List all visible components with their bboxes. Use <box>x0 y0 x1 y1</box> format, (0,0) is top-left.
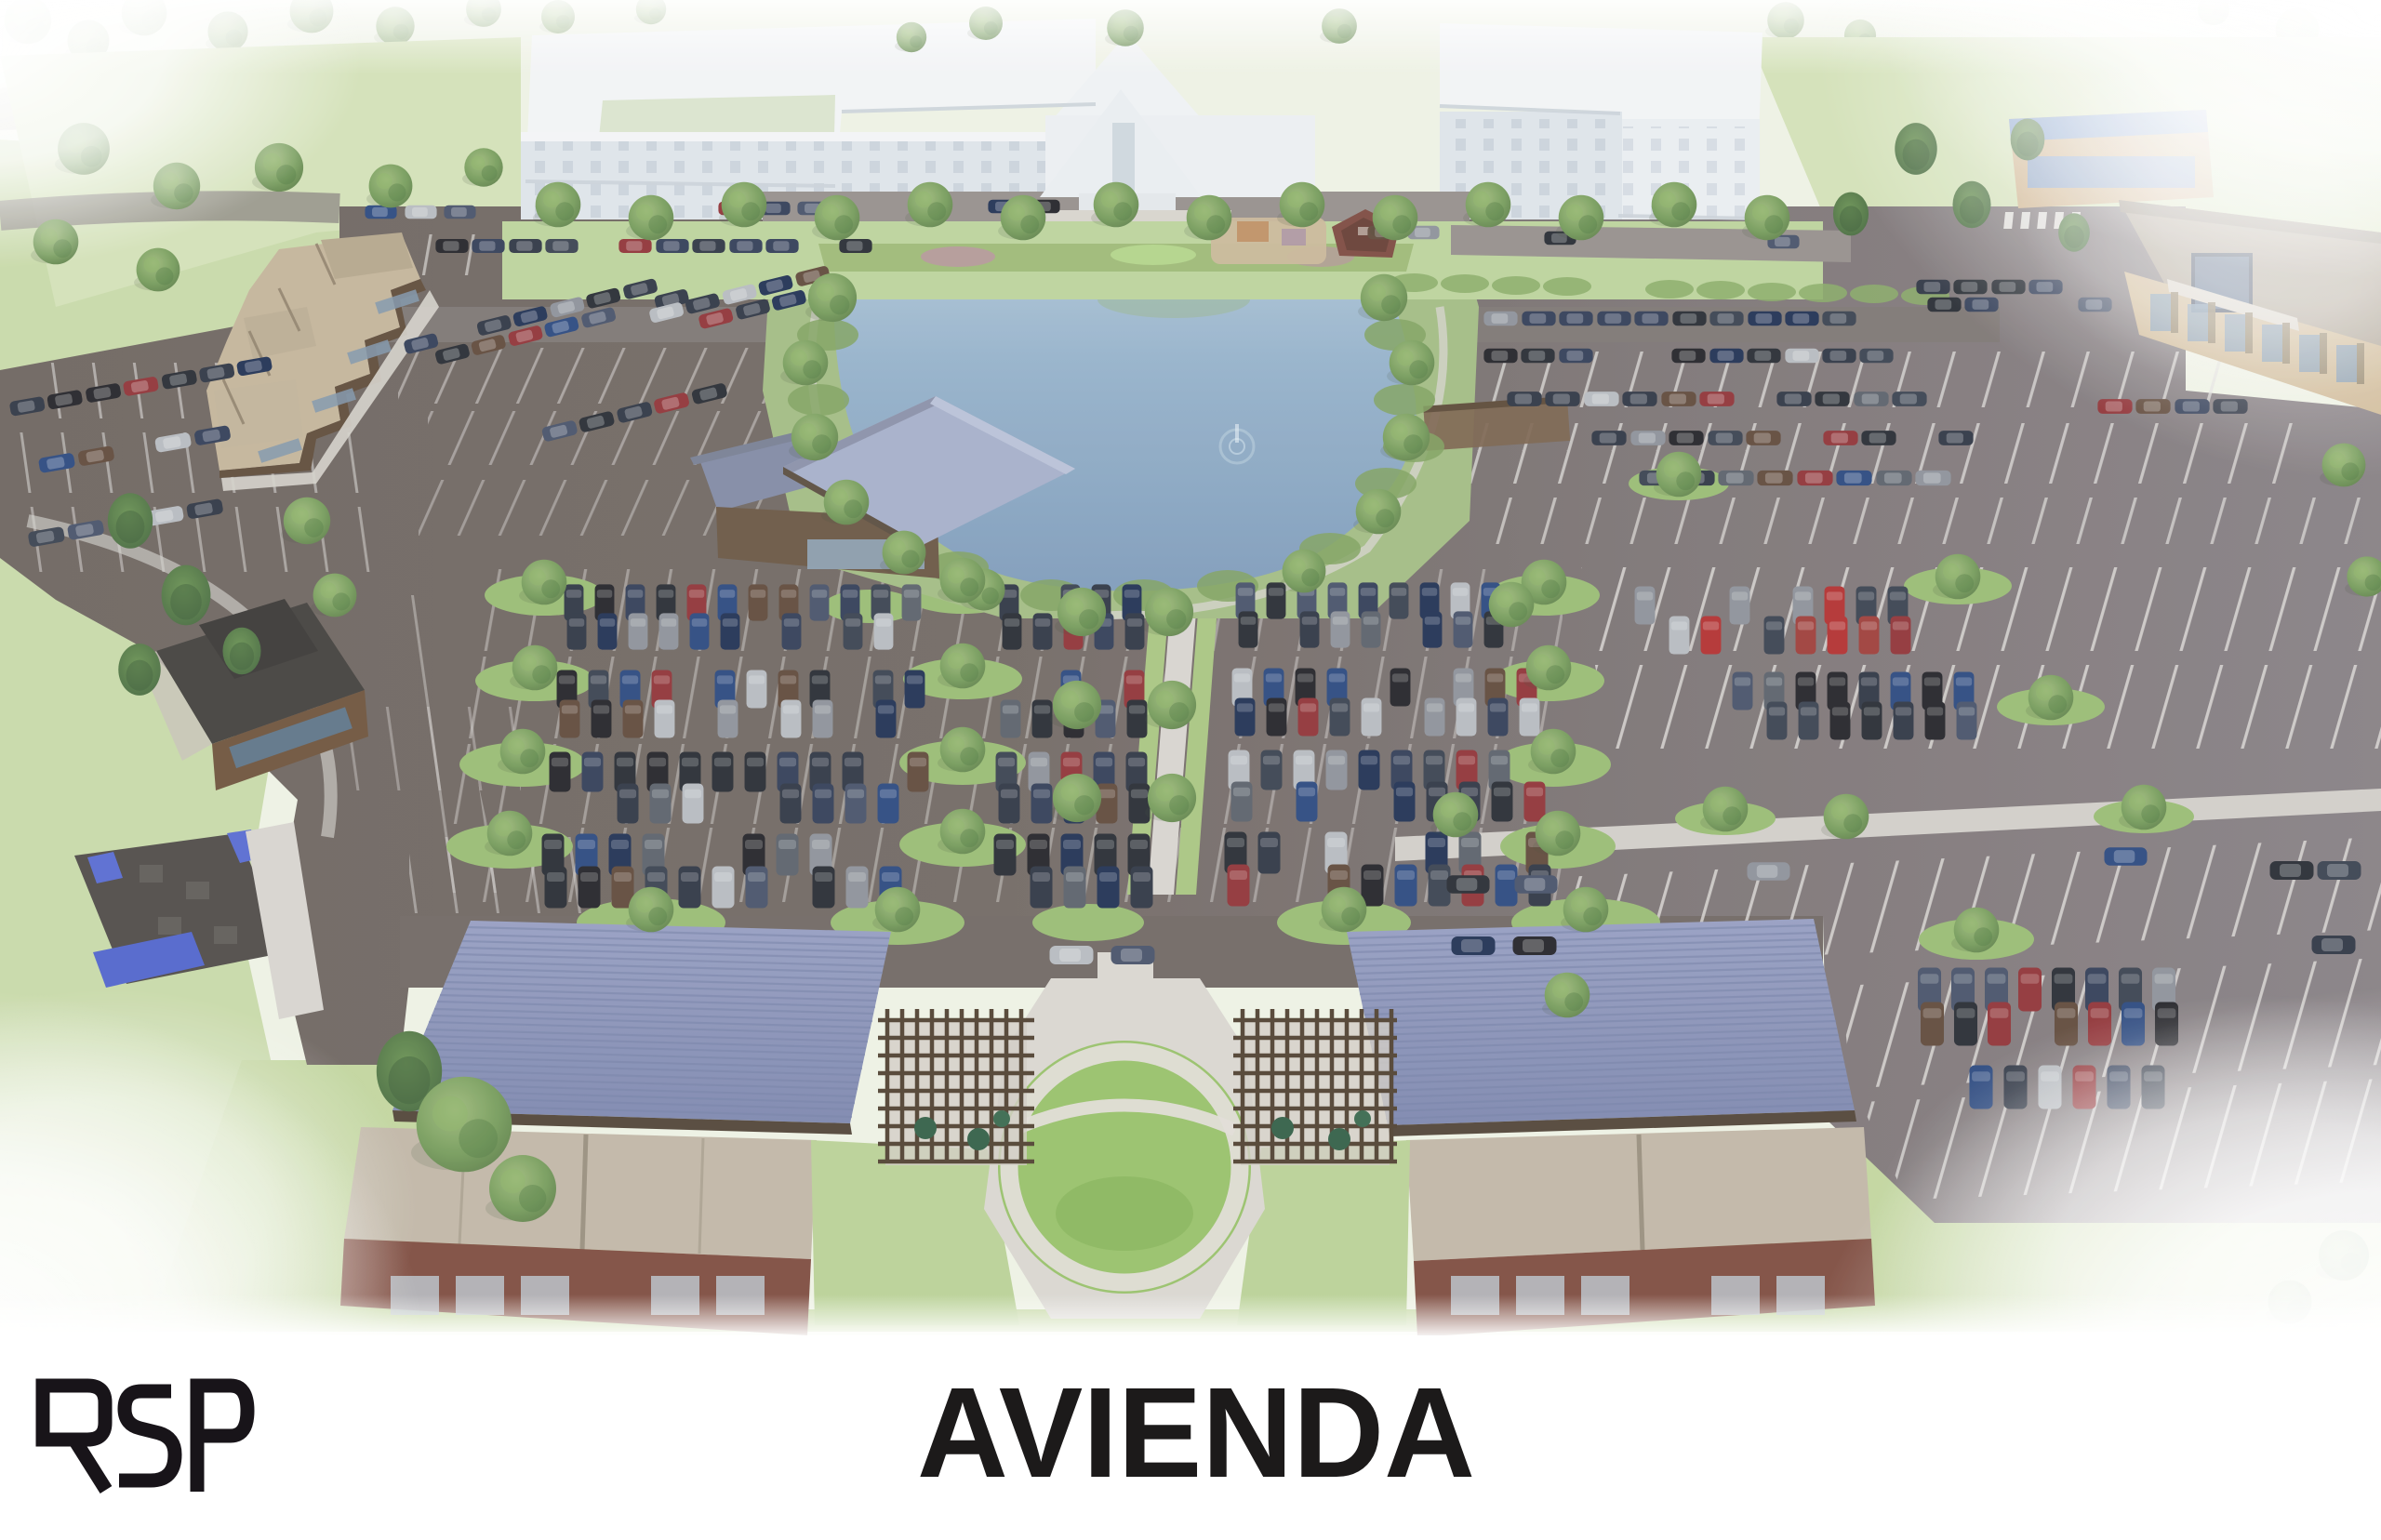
svg-text:AVIENDA: AVIENDA <box>917 1361 1475 1505</box>
